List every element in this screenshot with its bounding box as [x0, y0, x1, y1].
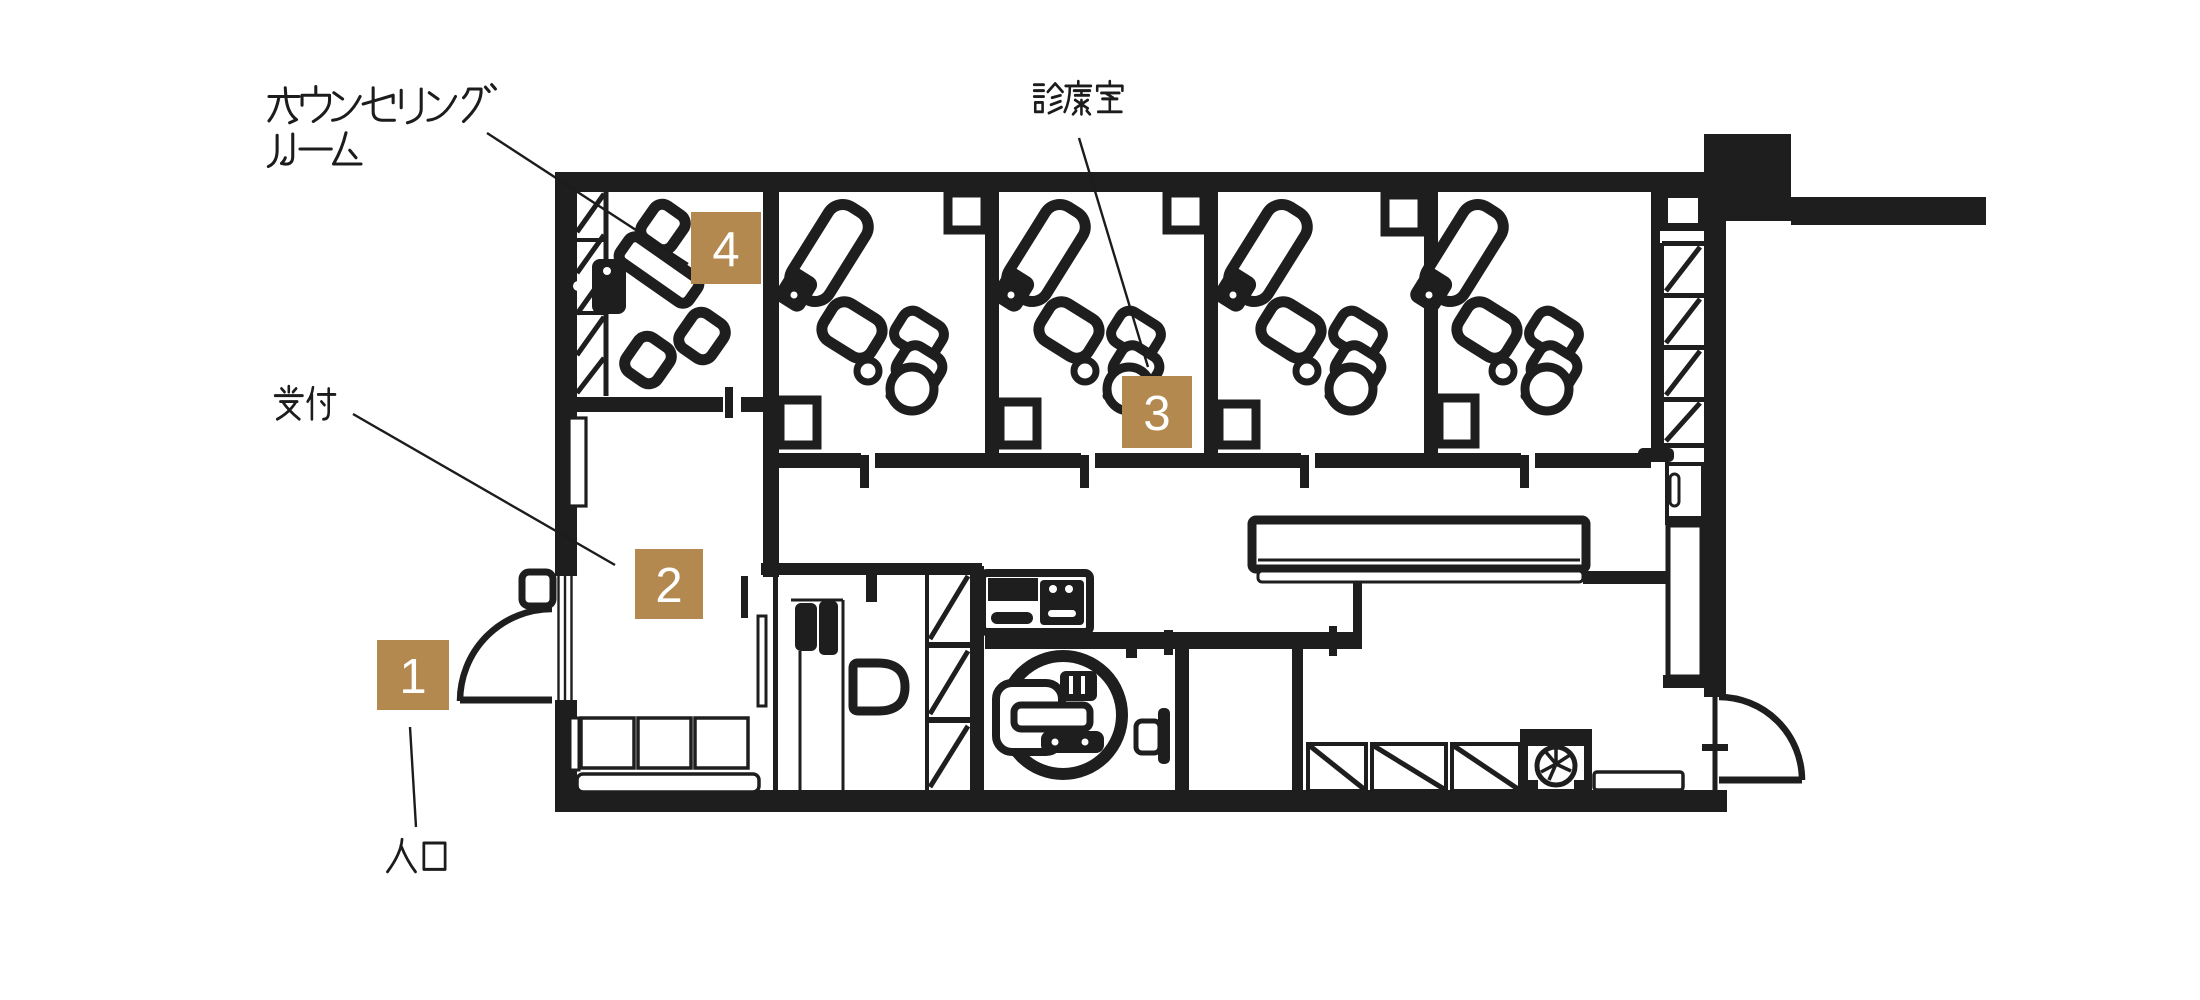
- svg-text:2: 2: [655, 559, 682, 613]
- svg-text:3: 3: [1143, 387, 1170, 441]
- svg-text:4: 4: [712, 223, 739, 277]
- svg-text:1: 1: [399, 650, 426, 704]
